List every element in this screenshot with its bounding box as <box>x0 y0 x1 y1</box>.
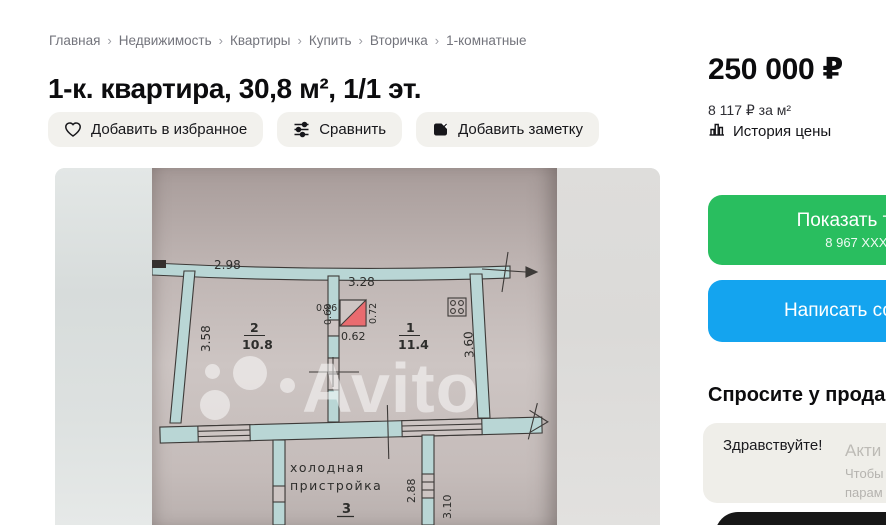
svg-text:2.98: 2.98 <box>214 258 241 272</box>
ask-side-text-3: парам <box>845 485 883 500</box>
breadcrumb-link-secondary[interactable]: Вторичка <box>370 33 428 48</box>
svg-text:3.28: 3.28 <box>348 275 375 289</box>
gallery-blur-left <box>55 168 152 525</box>
compare-label: Сравнить <box>319 121 386 138</box>
price: 250 000 ₽ <box>708 52 843 87</box>
breadcrumb-separator: › <box>359 33 363 48</box>
bar-chart-icon <box>708 121 725 141</box>
write-message-label: Написать сообщение <box>784 300 886 322</box>
listing-page: Главная › Недвижимость › Квартиры › Купи… <box>0 0 886 525</box>
ask-side-text-2: Чтобы <box>845 466 884 481</box>
action-buttons-row: Добавить в избранное Сравнить <box>48 112 599 147</box>
breadcrumb-separator: › <box>435 33 439 48</box>
ask-seller-heading: Спросите у продавца <box>708 384 886 407</box>
compare-button[interactable]: Сравнить <box>277 112 402 147</box>
breadcrumb: Главная › Недвижимость › Квартиры › Купи… <box>49 33 527 48</box>
svg-text:2: 2 <box>250 320 259 335</box>
show-phone-button[interactable]: Показать телефон 8 967 XXX-XX-XX <box>708 195 886 265</box>
write-message-button[interactable]: Написать сообщение <box>708 280 886 342</box>
svg-text:0.68: 0.68 <box>323 304 334 325</box>
show-phone-label: Показать телефон <box>797 210 886 232</box>
add-to-favorites-button[interactable]: Добавить в избранное <box>48 112 263 147</box>
floor-plan-photo: 2.98 3.28 3.58 3.60 0.26 0.68 0.72 0.62 … <box>152 168 557 525</box>
breadcrumb-separator: › <box>219 33 223 48</box>
plan-burner-icon <box>448 298 466 316</box>
svg-text:пристройка: пристройка <box>290 478 382 493</box>
price-per-m2: 8 117 ₽ за м² <box>708 102 791 119</box>
avito-watermark-text: Avito <box>302 350 479 426</box>
price-history-label: История цены <box>733 123 831 140</box>
avito-logo-circles <box>200 350 300 430</box>
svg-text:2.88: 2.88 <box>405 479 418 504</box>
gallery-blur-right <box>557 168 660 525</box>
svg-text:3.58: 3.58 <box>199 325 213 352</box>
ask-side-text-1: Акти <box>845 441 881 461</box>
svg-text:3.10: 3.10 <box>441 495 454 520</box>
floor-plan-drawing: 2.98 3.28 3.58 3.60 0.26 0.68 0.72 0.62 … <box>152 168 557 525</box>
plan-stove-symbol <box>340 300 366 326</box>
breadcrumb-link-home[interactable]: Главная <box>49 33 100 48</box>
svg-text:3: 3 <box>342 502 351 517</box>
note-icon <box>432 121 449 138</box>
add-to-favorites-label: Добавить в избранное <box>91 121 247 138</box>
breadcrumb-separator: › <box>107 33 111 48</box>
svg-text:холодная: холодная <box>290 460 365 475</box>
avito-watermark: Avito <box>200 350 479 430</box>
add-note-button[interactable]: Добавить заметку <box>416 112 599 147</box>
page-title: 1-к. квартира, 30,8 м², 1/1 эт. <box>48 73 421 105</box>
breadcrumb-separator: › <box>298 33 302 48</box>
svg-text:1: 1 <box>406 320 415 335</box>
dark-action-pill[interactable] <box>715 512 886 525</box>
breadcrumb-link-one-room[interactable]: 1-комнатные <box>446 33 526 48</box>
breadcrumb-link-realty[interactable]: Недвижимость <box>119 33 212 48</box>
suggestion-chip: Здравствуйте! <box>723 437 822 454</box>
ask-seller-input[interactable]: Здравствуйте! Акти Чтобы парам <box>703 423 886 503</box>
svg-text:0.72: 0.72 <box>368 303 379 324</box>
price-history-link[interactable]: История цены <box>708 121 831 141</box>
breadcrumb-link-flats[interactable]: Квартиры <box>230 33 291 48</box>
phone-mask: 8 967 XXX-XX-XX <box>825 235 886 250</box>
compare-icon <box>293 121 310 138</box>
breadcrumb-link-buy[interactable]: Купить <box>309 33 352 48</box>
photo-gallery[interactable]: 2.98 3.28 3.58 3.60 0.26 0.68 0.72 0.62 … <box>55 168 660 525</box>
add-note-label: Добавить заметку <box>458 121 583 138</box>
heart-icon <box>64 121 82 138</box>
svg-text:0.62: 0.62 <box>341 330 366 343</box>
